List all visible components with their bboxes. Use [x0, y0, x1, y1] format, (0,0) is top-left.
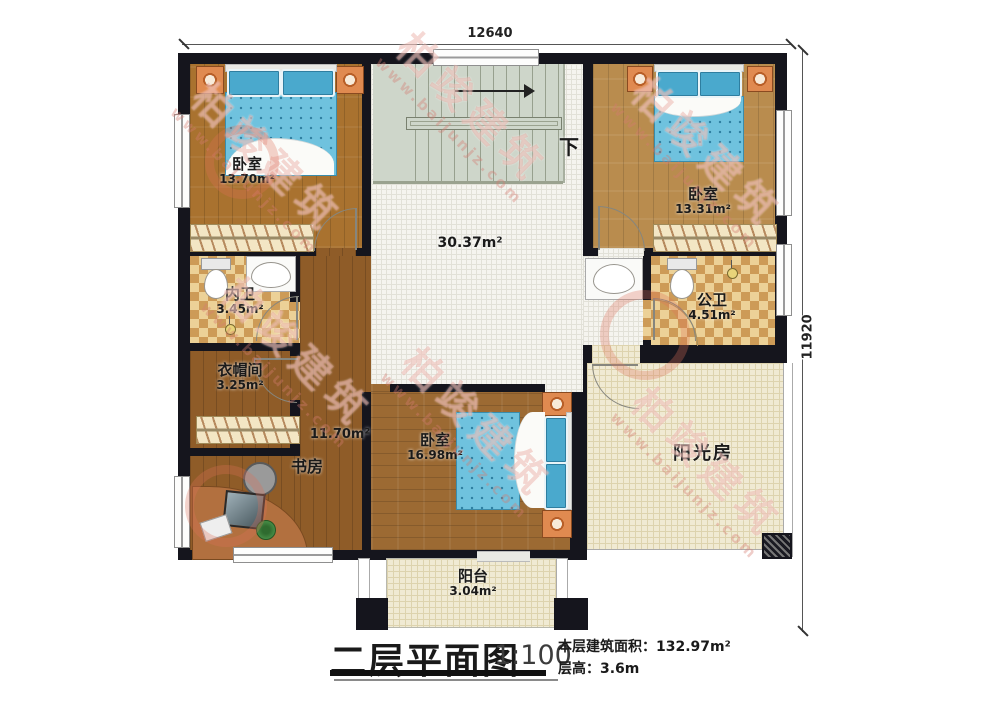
bedroom-tr-door-leaf [598, 206, 600, 250]
bedroom-tr-label: 卧室 13.31m² [663, 186, 743, 216]
bedroom-tl-label: 卧室 13.70m² [197, 156, 297, 186]
room-name: 书房 [272, 458, 342, 476]
sunroom-corner-post [762, 533, 792, 559]
top-dimension-line [182, 44, 792, 45]
room-area: 16.98m² [383, 449, 487, 462]
floor-height-text: 层高：3.6m [558, 658, 798, 678]
bath-public-label: 公卫 4.51m² [668, 292, 756, 322]
room-name: 公卫 [668, 292, 756, 309]
bedroom-tl-door-leaf [355, 208, 357, 250]
balcony-label: 阳台 3.04m² [418, 568, 528, 598]
nightstand [627, 66, 653, 92]
sunroom-right-wall [783, 363, 793, 557]
bed-pillow [698, 70, 742, 98]
bed-pillow [544, 416, 568, 464]
hall-area-label: 30.37m² [425, 236, 515, 252]
sunroom-door-gap [592, 345, 640, 363]
room-name: 阳台 [418, 568, 528, 585]
bath-public-door-leaf [653, 298, 655, 340]
room-name: 卧室 [383, 432, 487, 449]
right-wall-window-bath [776, 244, 792, 316]
corridor-floor-upper [300, 256, 371, 392]
room-area: 13.70m² [197, 173, 297, 186]
cloakroom-label: 衣帽间 3.25m² [188, 362, 292, 392]
bath-inner-door-leaf [296, 296, 298, 340]
balcony-column-right [554, 598, 588, 630]
room-area: 11.70m² [300, 428, 380, 443]
right-dimension-value: 11920 [801, 316, 816, 360]
nightstand [336, 66, 364, 94]
down-text: 下 [556, 136, 582, 158]
sink-basin [593, 264, 635, 294]
bath-inner-label: 内卫 3.45m² [198, 286, 282, 316]
lamp-icon [727, 268, 738, 279]
sink-basin [251, 262, 291, 288]
room-area: 30.37m² [425, 236, 515, 252]
bed-pillow [656, 70, 700, 98]
stair-top-window [433, 49, 539, 66]
dimension-tick [797, 625, 808, 636]
room-name: 卧室 [197, 156, 297, 173]
stair-direction-arrow [524, 84, 535, 98]
room-area: 3.45m² [198, 303, 282, 316]
left-wall-window-study [174, 476, 190, 548]
lamp-icon [225, 324, 236, 335]
room-area: 13.31m² [663, 203, 743, 216]
stair-bottom-edge [373, 181, 563, 184]
sunroom-door-leaf [592, 364, 638, 366]
bottom-wall-window-study [233, 547, 333, 563]
bath-public-door-gap [643, 300, 651, 340]
plan-title: 二层平面图 [330, 632, 520, 684]
floor-plan-canvas: 卧室 13.70m² 卧室 13.31m² 内卫 3.45m² 公卫 4.51m… [0, 0, 1000, 706]
stair-handrail [406, 117, 562, 130]
room-name: 阳光房 [648, 444, 758, 464]
study-label: 书房 [272, 458, 342, 476]
lamp-stem [731, 260, 732, 268]
right-wall-window-bedroom [776, 110, 792, 216]
stair-down-label: 下 [556, 136, 582, 158]
lamp-stem [229, 316, 230, 324]
bedroom-b-entry-gap [371, 384, 390, 392]
left-wall-window-bedroom [174, 114, 190, 208]
dimension-tick [797, 44, 808, 55]
sunroom-outside-mask [587, 557, 787, 561]
nightstand [196, 66, 224, 94]
top-dimension-value: 12640 [452, 26, 528, 41]
bed-pillow [227, 69, 281, 97]
balcony-door-threshold [477, 551, 530, 562]
sunroom-label: 阳光房 [648, 444, 758, 464]
bedroom-b-top-wall [390, 384, 545, 392]
floor-area-text: 本层建筑面积：132.97m² [558, 636, 798, 656]
nightstand [747, 66, 773, 92]
wardrobe [196, 416, 300, 444]
potted-plant [256, 520, 276, 540]
cloakroom-door-leaf [254, 358, 298, 360]
bed-pillow [281, 69, 335, 97]
study-area-label: 11.70m² [300, 428, 380, 443]
balcony-column-left [356, 598, 388, 630]
room-name: 衣帽间 [188, 362, 292, 379]
stair-flight-lower [415, 129, 563, 183]
room-name: 卧室 [663, 186, 743, 203]
nightstand [542, 510, 572, 538]
title-underline-thin [334, 679, 558, 681]
stair-direction-line [455, 90, 525, 92]
room-area: 3.25m² [188, 379, 292, 392]
bedroom-b-label: 卧室 16.98m² [383, 432, 487, 462]
wardrobe [190, 224, 314, 252]
room-name: 内卫 [198, 286, 282, 303]
bed-pillow [544, 462, 568, 510]
room-area: 4.51m² [668, 309, 756, 322]
bed-blanket-fold [514, 412, 545, 508]
wardrobe [653, 224, 777, 252]
room-area: 3.04m² [418, 585, 528, 598]
